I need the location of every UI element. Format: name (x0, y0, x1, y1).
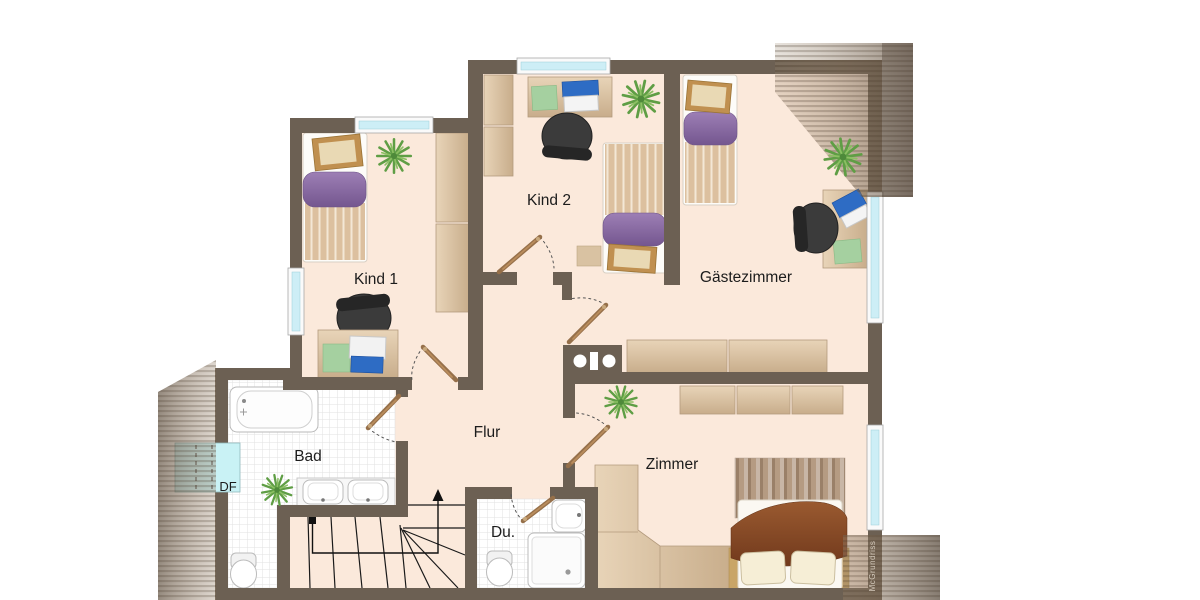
label-du: Du. (491, 524, 515, 541)
roof-slope-left (158, 360, 216, 600)
desk-mat-kind2 (531, 85, 557, 110)
sideboard-gaestezimmer (627, 340, 827, 373)
watermark: McGrundriss (868, 541, 877, 592)
toilet-bad (231, 553, 257, 588)
label-bad: Bad (294, 448, 322, 465)
window-kind1-left (288, 268, 304, 335)
label-df: DF (219, 479, 236, 494)
label-flur: Flur (474, 424, 501, 441)
chimney (563, 345, 622, 377)
bathtub (230, 387, 318, 432)
label-gaestezimmer: Gästezimmer (700, 269, 792, 286)
double-sink (297, 478, 395, 506)
window-kind2-top (517, 58, 610, 74)
sink-du (552, 500, 586, 532)
laptop-kind1 (349, 336, 386, 373)
roof-slope-bottom-right (843, 535, 940, 600)
floor-plan-page: Kind 1 Kind 2 Gästezimmer Flur Bad DF Du… (0, 0, 1200, 600)
laptop-kind2 (562, 80, 600, 112)
desk-mat-kind1 (323, 344, 350, 372)
floor-plan: Kind 1 Kind 2 Gästezimmer Flur Bad DF Du… (0, 0, 1200, 600)
shower (528, 533, 585, 588)
double-bed-zimmer (729, 458, 849, 592)
bed-kind1 (303, 133, 367, 262)
bed-gaestezimmer (683, 75, 737, 205)
label-zimmer: Zimmer (646, 456, 699, 473)
window-kind1-top (355, 117, 433, 133)
window-zimmer-right (867, 425, 883, 530)
cabinet-row-zimmer (680, 386, 843, 414)
window-gaestezimmer-right (867, 192, 883, 323)
label-kind2: Kind 2 (527, 192, 571, 209)
desk-mat-gaestezimmer (833, 239, 862, 264)
toilet-du (487, 551, 513, 586)
label-kind1: Kind 1 (354, 271, 398, 288)
